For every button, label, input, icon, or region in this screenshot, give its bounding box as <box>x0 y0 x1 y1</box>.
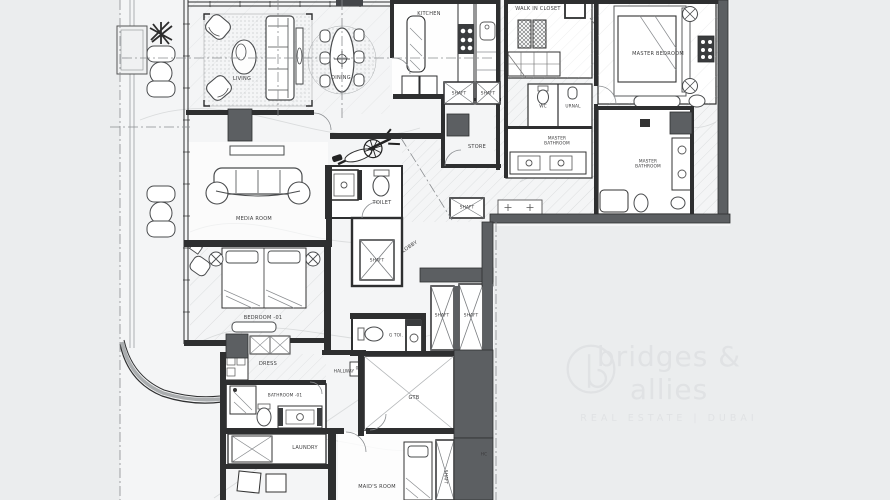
toilet-01 <box>257 404 271 426</box>
stool <box>689 95 705 107</box>
closet-unit-2 <box>533 20 546 48</box>
toilet-fixture <box>373 170 389 196</box>
balcony-seating-2 <box>147 186 175 237</box>
planter-box <box>117 26 147 74</box>
double-vanity <box>510 152 586 174</box>
tv-console <box>296 28 303 84</box>
living-room <box>203 12 312 106</box>
bedroom-bench <box>232 322 276 332</box>
kitchen-island <box>407 16 425 72</box>
vanity-01 <box>278 406 322 428</box>
bath-toilet-2 <box>671 197 685 209</box>
media-room <box>188 142 328 242</box>
guest-toilet <box>352 318 422 354</box>
bath-tub <box>600 190 628 212</box>
bath-toilet-1 <box>634 194 648 212</box>
urinal-fixture <box>568 87 577 99</box>
gtb-room <box>364 356 454 430</box>
media-tv-cabinet <box>230 146 284 155</box>
closet-unit-1 <box>518 20 531 48</box>
maid-bed <box>404 442 432 500</box>
shower <box>230 386 256 414</box>
wc-toilet <box>538 90 549 104</box>
balcony-seating-1 <box>147 46 175 97</box>
wardrobe-units <box>250 336 290 354</box>
watermark-tagline: REAL ESTATE | DUBAI <box>563 413 775 424</box>
pillow-2 <box>268 251 300 263</box>
elevator-shaft <box>352 218 402 286</box>
pillow-1 <box>226 251 258 263</box>
floor-plan-drawing <box>0 0 890 500</box>
kitchen-cabinet-1 <box>402 76 419 95</box>
kitchen-cabinet-2 <box>420 76 437 95</box>
watermark: bridges & allies REAL ESTATE | DUBAI <box>563 340 775 424</box>
maids-room <box>338 432 454 500</box>
ceiling-symbol-2 <box>306 252 320 266</box>
bed-bench <box>634 96 680 107</box>
bathroom-01 <box>226 384 326 430</box>
floor-plan-page: LIVING DINING KITCHEN WALK IN CLOSET MAS… <box>0 0 890 500</box>
master-bed <box>614 6 698 96</box>
ceiling-symbol-1 <box>209 252 223 266</box>
coffee-table <box>232 40 256 74</box>
closet-top-box <box>565 2 585 18</box>
